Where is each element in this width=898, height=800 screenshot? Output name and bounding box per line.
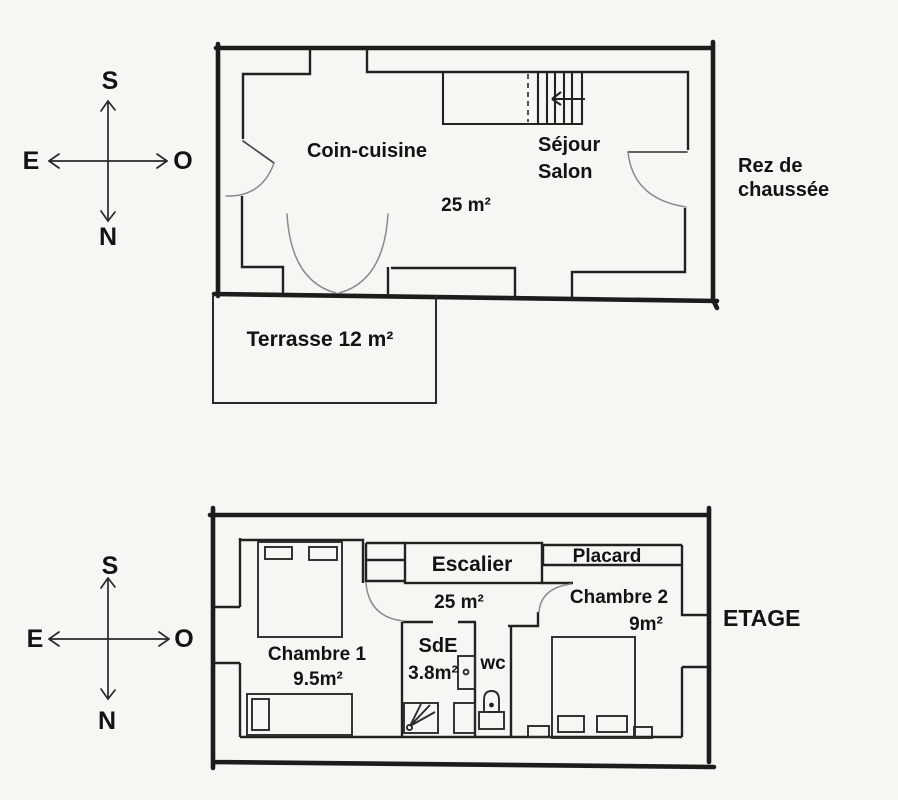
upper-floor-plan: Escalier 25 m² Placard Chambre 2 9m² Cha… <box>210 508 801 768</box>
uf-bedroom1-single-bed <box>247 694 352 735</box>
label-uf-area: 25 m² <box>434 592 484 613</box>
label-closet: Placard <box>573 546 642 567</box>
uf-bedroom1-double-bed <box>258 542 342 637</box>
compass-label-n: N <box>99 223 117 251</box>
label-floor-name-line2: chaussée <box>738 179 829 201</box>
label-floor-name-line1: Rez de <box>738 155 802 177</box>
compass-label-e: E <box>23 147 40 175</box>
pillow <box>309 547 337 560</box>
gf-staircase <box>443 72 585 124</box>
compass-upper-floor: S E O N <box>27 552 194 735</box>
label-terrace: Terrasse 12 m² <box>247 328 394 351</box>
label-bedroom2: Chambre 2 <box>570 587 668 608</box>
floor-plan-drawing: S E O N C <box>0 0 898 800</box>
uf-shower <box>404 703 438 733</box>
label-bedroom1-area: 9.5m² <box>293 669 343 690</box>
uf-toilet <box>479 691 504 729</box>
compass-label-s: S <box>102 67 119 95</box>
gf-door-right <box>628 152 687 207</box>
gf-french-doors <box>287 214 388 293</box>
compass-label-e: E <box>27 625 44 653</box>
gf-inner-walls <box>242 48 688 298</box>
gf-door-left <box>226 141 274 196</box>
label-wc: wc <box>479 653 506 674</box>
compass-label-n: N <box>98 707 116 735</box>
pillow <box>597 716 627 732</box>
compass-label-o: O <box>174 625 193 653</box>
uf-bedroom2-door-arc <box>539 584 571 612</box>
scanned-floor-plan-page: S E O N C <box>0 0 898 800</box>
uf-bedroom2-bed <box>552 637 635 738</box>
label-shower-room: SdE <box>419 635 458 657</box>
label-shower-room-area: 3.8m² <box>408 663 458 684</box>
label-bedroom2-area: 9m² <box>629 614 663 635</box>
ground-floor-plan: Coin-cuisine Séjour Salon 25 m² Rez de c… <box>213 42 829 403</box>
uf-bathroom-cabinet <box>454 703 475 733</box>
uf-nightstand-left <box>528 726 549 737</box>
pillow <box>558 716 584 732</box>
label-bedroom1: Chambre 1 <box>268 644 367 665</box>
pillow <box>265 547 292 559</box>
compass-label-o: O <box>173 147 192 175</box>
compass-label-s: S <box>102 552 119 580</box>
uf-washbasin <box>458 656 475 689</box>
label-gf-area: 25 m² <box>441 195 491 216</box>
compass-ground-floor: S E O N <box>23 67 193 251</box>
pillow <box>252 699 269 730</box>
label-living-line2: Salon <box>538 161 592 183</box>
label-upper-floor-name: ETAGE <box>723 605 801 631</box>
stair-direction-arrow <box>552 92 585 105</box>
label-kitchen: Coin-cuisine <box>307 140 427 162</box>
uf-stairwell-box <box>366 543 405 581</box>
label-stairs: Escalier <box>432 553 513 576</box>
label-living-line1: Séjour <box>538 134 600 156</box>
uf-bedroom1-door-arc <box>366 583 403 621</box>
